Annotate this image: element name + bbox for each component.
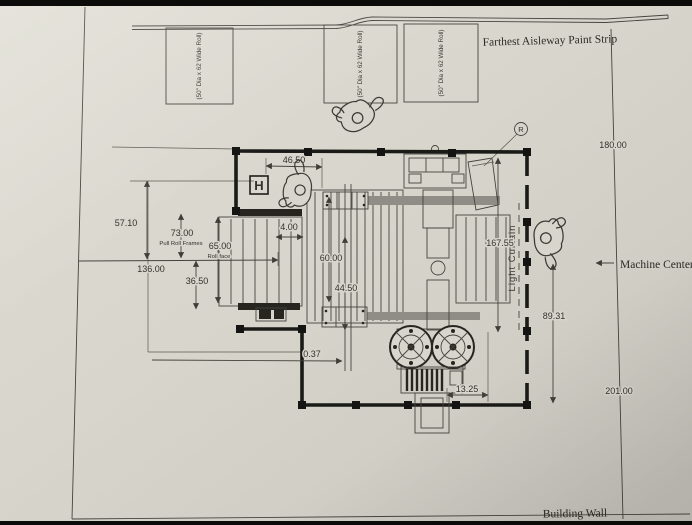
dim-4-00: 4.00 [280,222,298,232]
roll-face-label: Roll face [208,254,232,260]
dim-13-25: 13.25 [456,384,479,394]
unwind-wheel-right [432,326,474,368]
dim-36-50: 36.50 [186,276,209,286]
gray-conveyor-strip-lower [367,312,480,320]
building-wall-label: Building Wall [543,507,608,520]
unwind-wheel-left [390,326,432,368]
pull-roll-frames-label: Pull Roll Frames [159,241,202,247]
dim-73-00: 73.00 [171,228,194,238]
paper-sheet [0,6,692,521]
machine-layout-drawing: Farthest Aisleway Paint Strip (50" Dia x… [0,0,692,525]
roll-note-3: (50" Dia x 62 Wide Roll) [438,30,445,97]
dim-44-50: 44.50 [335,283,358,293]
dim-89-31: 89.31 [543,311,566,321]
dim-201-00: 201.00 [605,386,633,396]
dim-65-00: 65.00 [209,241,232,251]
dim-180-00: 180.00 [599,140,627,150]
roll-note-2: (50" Dia x 62 Wide Roll) [357,31,364,98]
dim-167-55: 167.55 [486,238,514,248]
dim-60-00: 60.00 [320,253,343,263]
h-marker-letter: H [254,178,263,193]
balloon-letter: R [518,125,524,134]
machine-centerline-label: Machine Centerl [620,259,692,271]
photo-of-drawing: Farthest Aisleway Paint Strip (50" Dia x… [0,0,692,525]
light-curtain-label: Light Curtain [507,225,518,292]
dim-0-37: 0.37 [303,349,321,359]
dim-136-00: 136.00 [137,264,165,274]
gray-conveyor-strip-upper [368,196,500,205]
dim-57-10: 57.10 [115,218,138,228]
roll-note-1: (50" Dia x 62 Wide Roll) [196,33,203,100]
dim-46-50: 46.50 [283,155,306,165]
